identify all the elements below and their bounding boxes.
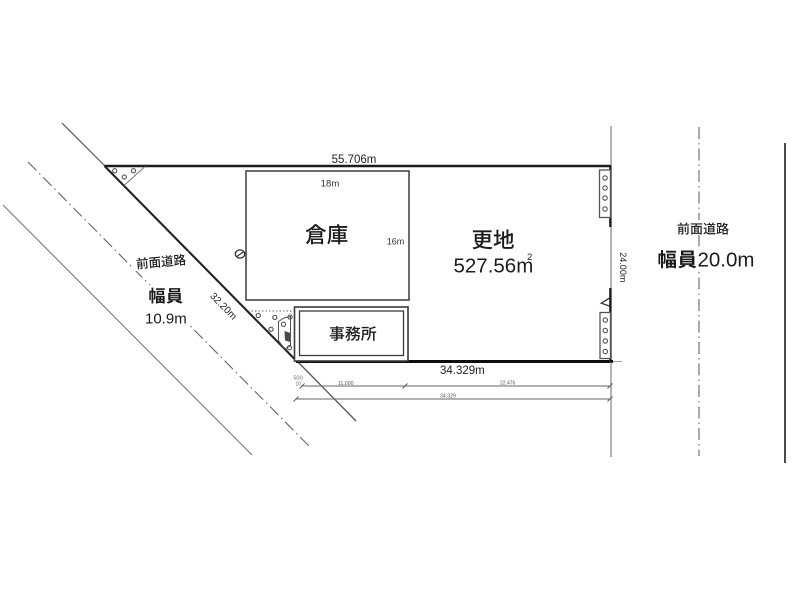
svg-text:527.56m: 527.56m [454,255,534,278]
svg-text:10.9m: 10.9m [145,311,187,328]
svg-text:16m: 16m [387,237,405,247]
svg-text:55.706m: 55.706m [332,154,377,166]
svg-text:18m: 18m [321,179,340,190]
svg-text:11.000: 11.000 [338,381,354,387]
svg-text:2: 2 [527,252,532,263]
svg-text:22.476: 22.476 [500,381,516,387]
svg-text:34.329m: 34.329m [440,365,485,377]
svg-text:10: 10 [296,382,302,388]
svg-text:34.329: 34.329 [440,394,456,400]
svg-text:20.0m: 20.0m [698,249,755,272]
svg-text:24.00m: 24.00m [618,252,628,282]
